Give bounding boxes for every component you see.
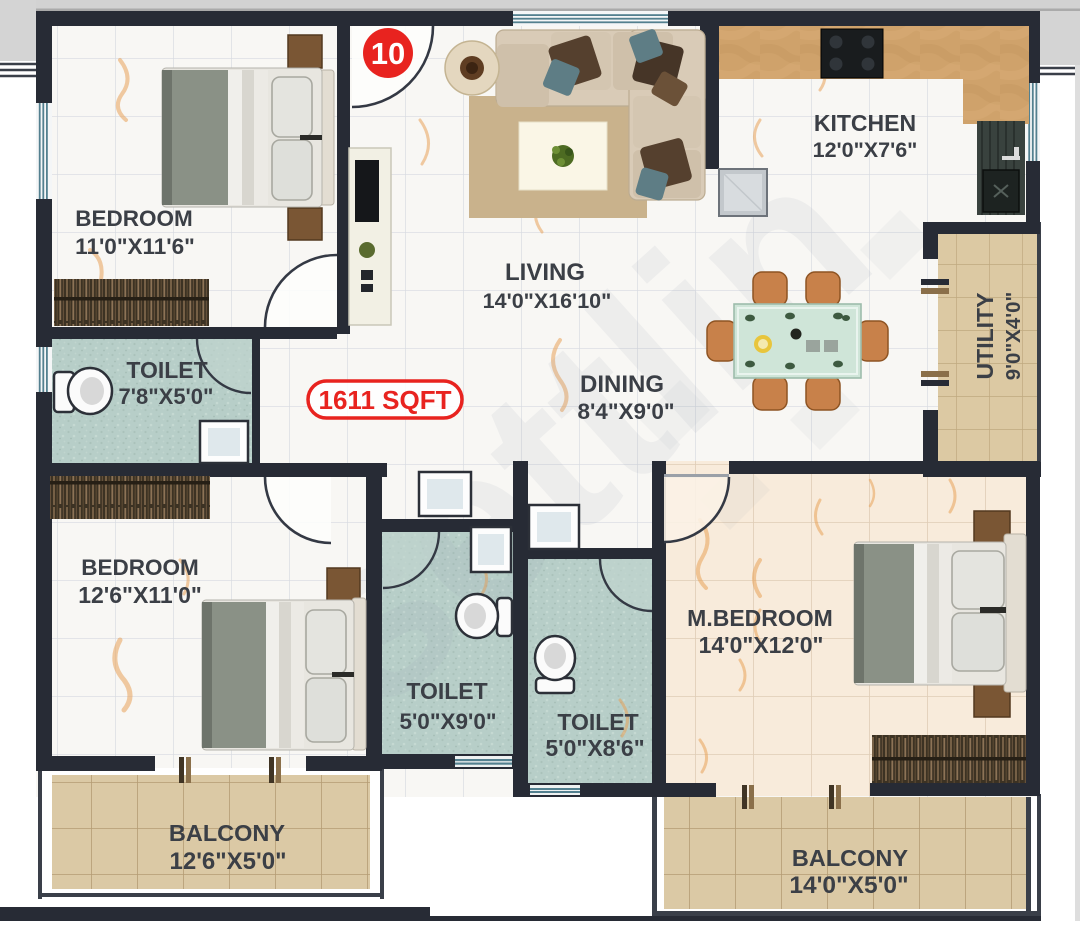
- svg-text:14'0"X5'0": 14'0"X5'0": [789, 872, 908, 899]
- svg-text:TOILET: TOILET: [126, 357, 207, 383]
- svg-text:TOILET: TOILET: [557, 709, 638, 735]
- svg-text:11'0"X11'6": 11'0"X11'6": [75, 234, 195, 259]
- svg-text:1611 SQFT: 1611 SQFT: [319, 385, 452, 415]
- svg-text:14'0"X16'10": 14'0"X16'10": [483, 289, 612, 313]
- svg-text:12'6"X11'0": 12'6"X11'0": [78, 582, 202, 608]
- svg-text:8'4"X9'0": 8'4"X9'0": [577, 399, 674, 424]
- svg-text:7'8"X5'0": 7'8"X5'0": [119, 384, 214, 409]
- svg-text:M.BEDROOM: M.BEDROOM: [687, 605, 833, 631]
- svg-text:10: 10: [371, 36, 405, 71]
- svg-text:BALCONY: BALCONY: [792, 845, 909, 871]
- svg-text:KITCHEN: KITCHEN: [814, 110, 916, 136]
- svg-text:12'6"X5'0": 12'6"X5'0": [170, 848, 287, 875]
- svg-text:5'0"X8'6": 5'0"X8'6": [545, 735, 644, 761]
- svg-text:BEDROOM: BEDROOM: [75, 206, 193, 231]
- svg-text:BEDROOM: BEDROOM: [81, 555, 199, 580]
- svg-text:LIVING: LIVING: [505, 259, 585, 286]
- svg-text:TOILET: TOILET: [406, 678, 487, 704]
- svg-text:14'0"X12'0": 14'0"X12'0": [699, 632, 824, 658]
- svg-text:9'0"X4'0": 9'0"X4'0": [1002, 292, 1025, 380]
- svg-text:5'0"X9'0": 5'0"X9'0": [399, 709, 496, 734]
- svg-text:DINING: DINING: [580, 371, 664, 398]
- svg-text:UTILITY: UTILITY: [972, 293, 998, 380]
- svg-text:12'0"X7'6": 12'0"X7'6": [813, 138, 918, 162]
- svg-text:BALCONY: BALCONY: [169, 820, 286, 846]
